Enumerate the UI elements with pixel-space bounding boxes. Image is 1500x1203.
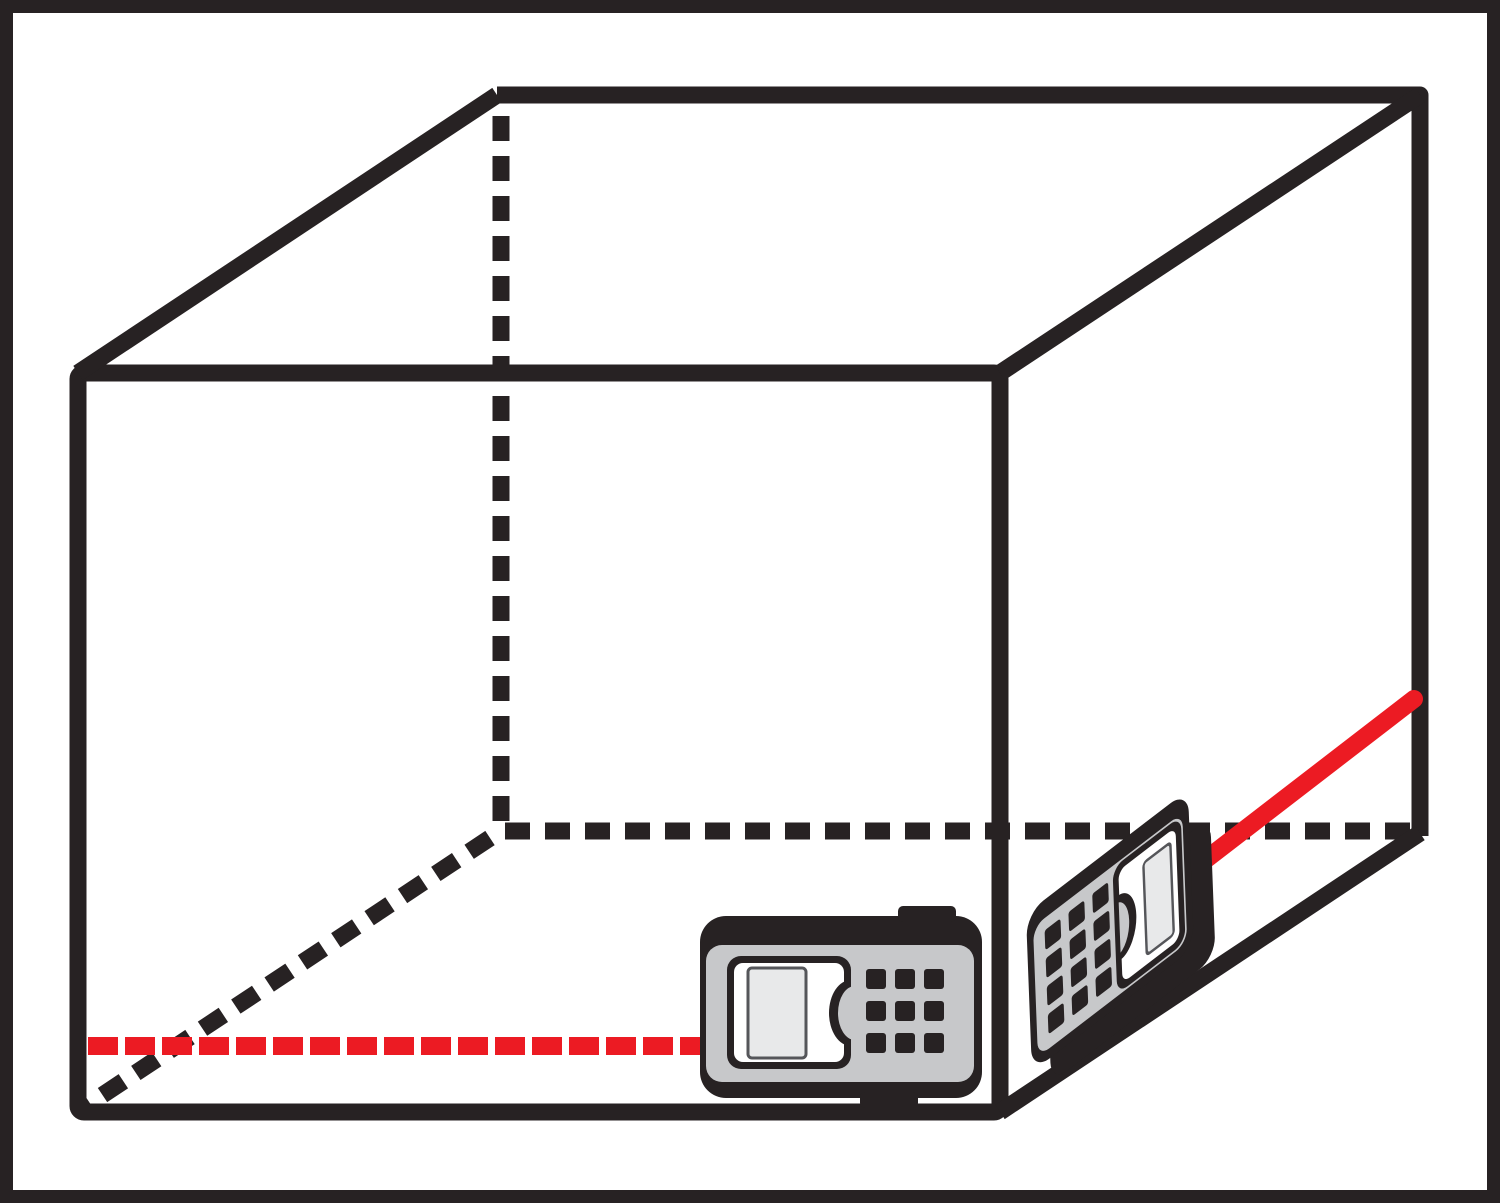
display-screen: [748, 968, 806, 1058]
keypad-key: [866, 969, 886, 989]
cube-depth-edge: [1000, 95, 1420, 373]
keypad-key: [866, 1001, 886, 1021]
laser-distance-meter-side: [1026, 774, 1216, 1097]
keypad-key: [924, 1001, 944, 1021]
keypad-key: [866, 1033, 886, 1053]
device-clip-tab: [898, 906, 956, 922]
keypad-key: [895, 1001, 915, 1021]
device-clip-tab: [860, 1092, 918, 1108]
diagram-canvas: [0, 0, 1500, 1203]
keypad-key: [924, 969, 944, 989]
laser-distance-meter-front: [700, 906, 982, 1108]
keypad-key: [895, 969, 915, 989]
keypad-key: [924, 1033, 944, 1053]
cube-back-edges: [497, 95, 1420, 836]
room-measurement-diagram: [0, 0, 1500, 1203]
cube-depth-edge: [78, 95, 497, 373]
display-screen: [1143, 842, 1173, 955]
cube-hidden-edge: [86, 838, 490, 1106]
keypad-key: [895, 1033, 915, 1053]
